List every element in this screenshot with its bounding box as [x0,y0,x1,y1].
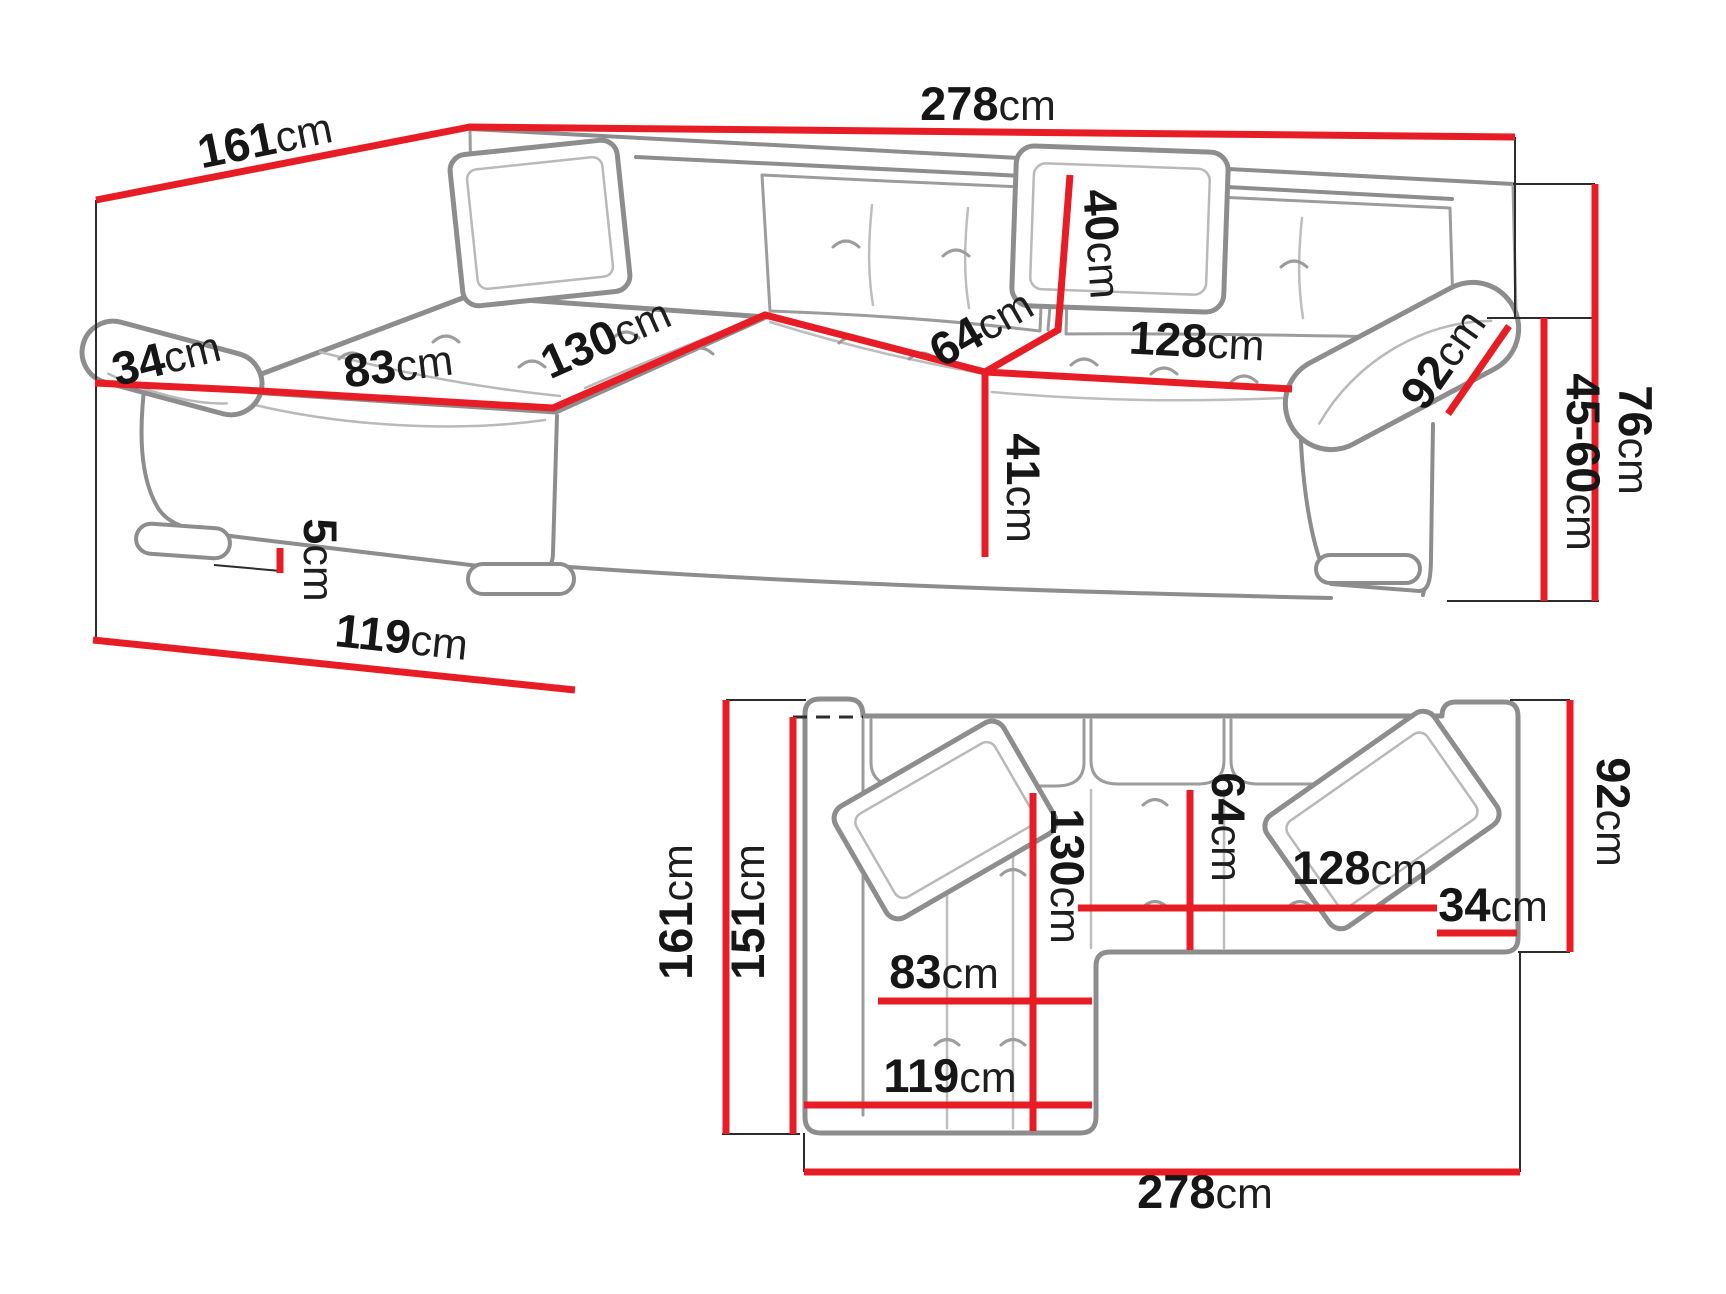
dim-label-119: 119cm [333,603,471,670]
plan-view: 161cm 151cm 130cm 83cm 119cm 278cm 64cm … [649,699,1640,1218]
perspective-view: 161cm 278cm 34cm 83cm 130cm 40cm 64cm 12… [75,77,1662,690]
seat-front-bulge-right [992,392,1284,400]
dim-label-278: 278cm [920,77,1056,130]
plan-label-278: 278cm [1137,1165,1273,1218]
plan-label-130: 130cm [1041,808,1094,944]
plan-label-92: 92cm [1587,757,1640,867]
dim-label-5: 5cm [294,518,347,601]
plan-label-161: 161cm [649,844,702,980]
sofa-leg-left [135,523,231,559]
sofa-dimensions-figure: 161cm 278cm 34cm 83cm 130cm 40cm 64cm 12… [0,0,1726,1294]
plan-label-128: 128cm [1292,841,1428,894]
sofa-leg-right [1316,555,1420,583]
plan-label-119: 119cm [883,1049,1016,1102]
dim-label-41: 41cm [997,433,1050,543]
dim-label-40: 40cm [1073,187,1134,300]
plan-label-83: 83cm [889,945,999,998]
sofa-base-bottom-edge [556,566,1331,598]
extension-leg-leader [214,565,281,571]
pillow-left [449,139,632,308]
plan-label-151: 151cm [721,844,774,980]
diagram-canvas: 161cm 278cm 34cm 83cm 130cm 40cm 64cm 12… [0,0,1726,1294]
dim-label-76: 76cm [1609,385,1662,495]
sofa-leg-middle [468,564,574,594]
plan-label-34: 34cm [1438,878,1548,931]
dim-label-45-60: 45-60cm [1557,373,1610,551]
plan-label-64: 64cm [1202,772,1255,882]
